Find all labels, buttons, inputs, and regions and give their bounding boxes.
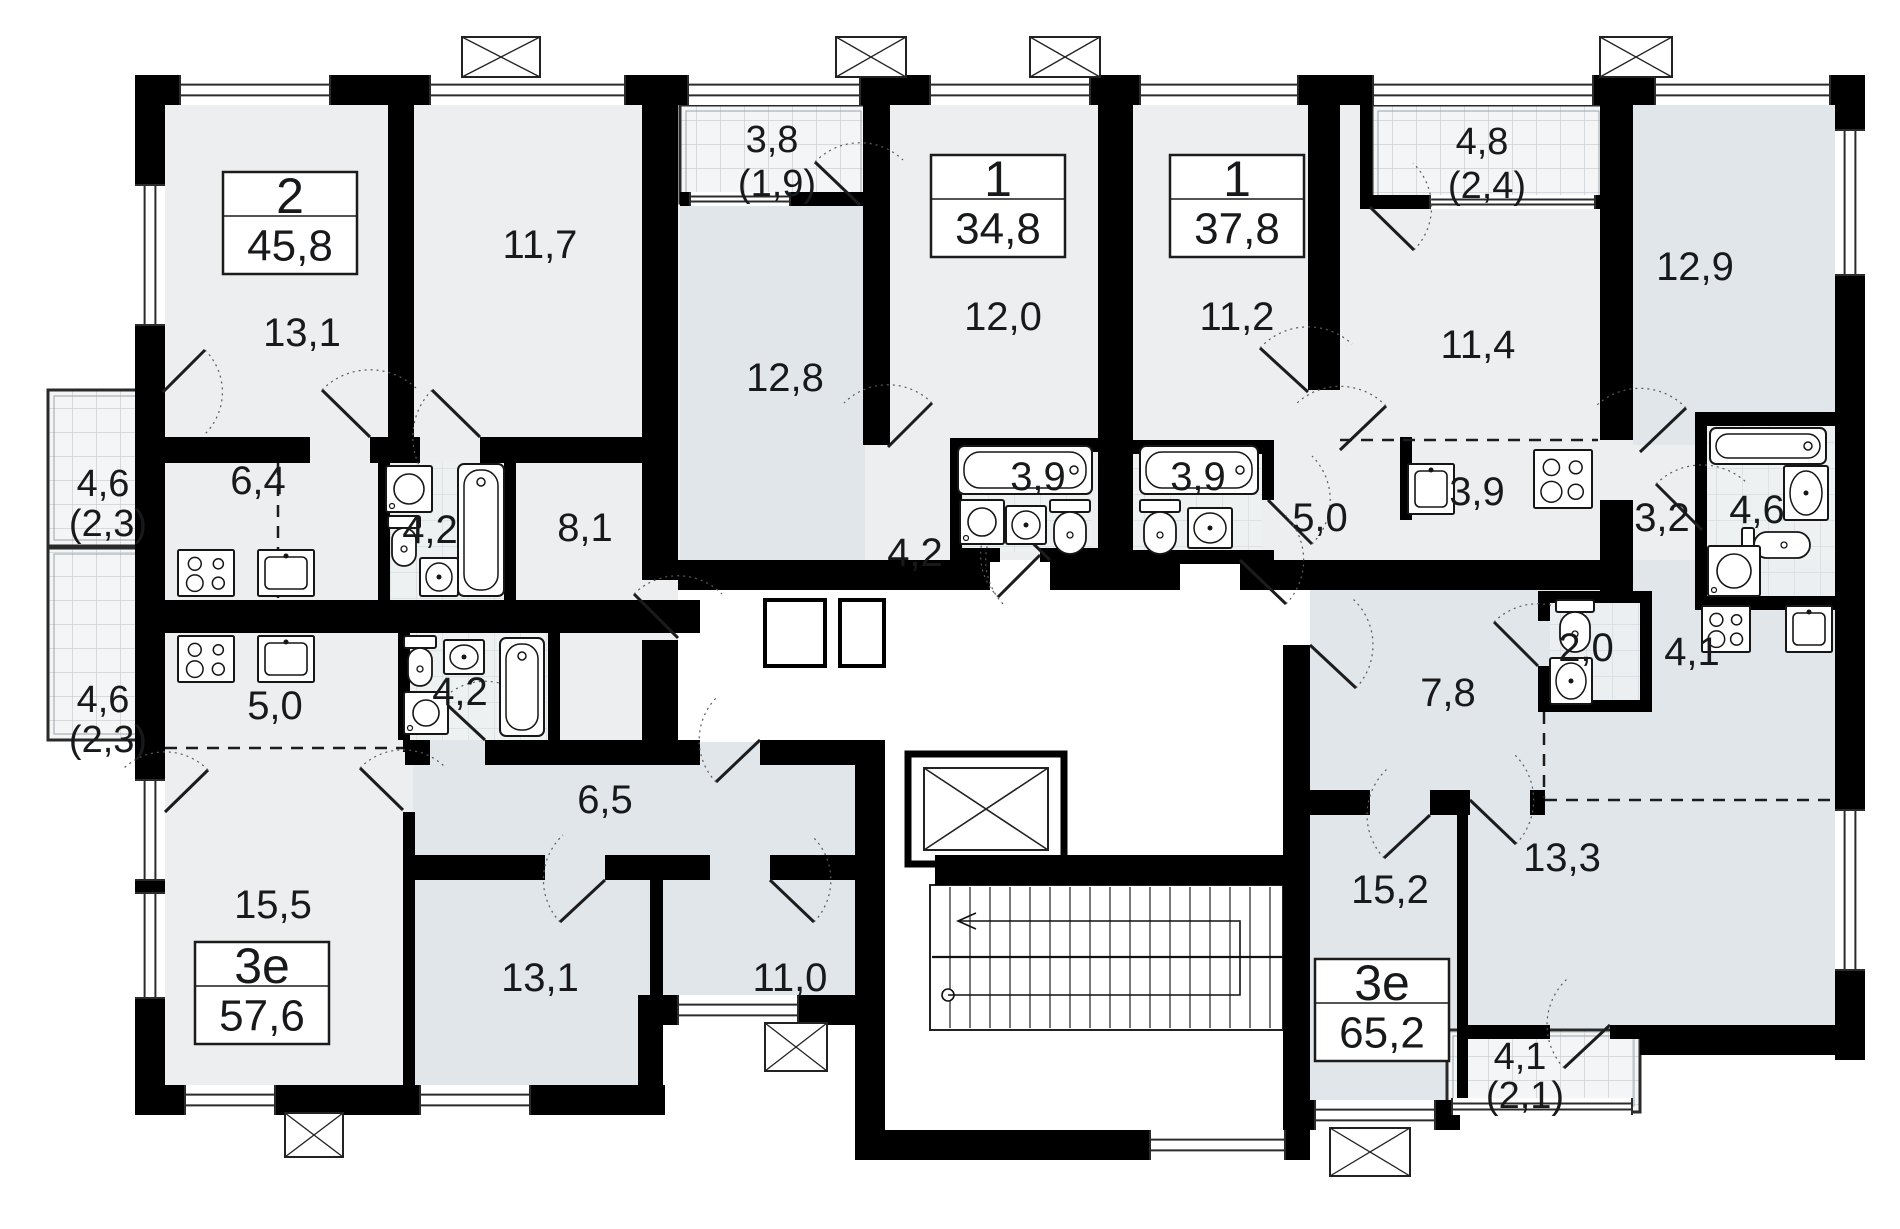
apt-3e-65-2-bathroom-area-label: 4,6 [1729, 488, 1785, 532]
apt-2rooms-45-8-hallway-area-label: 8,1 [557, 506, 613, 550]
apt-3e-65-2-hallway-area-label: 7,8 [1420, 671, 1476, 715]
apt-3e-65-2-bedroom-2-area-label: 13,3 [1523, 836, 1601, 880]
apartment-type-label: 1 [984, 151, 1012, 207]
apt-3e-65-2: 3е65,2 [1315, 955, 1449, 1061]
apartment-total-area-label: 45,8 [247, 222, 333, 271]
apt-3e-65-2-wc-area-label: 2,0 [1558, 626, 1614, 670]
apt-1room-34-8-bedroom-area-label: 12,0 [964, 295, 1042, 339]
apt-3e-57-6: 3е57,6 [195, 938, 329, 1044]
floor-plan-svg: 245,813,111,76,44,28,1134,812,812,03,94,… [0, 0, 1900, 1229]
apartment-total-area-label: 37,8 [1194, 205, 1280, 254]
apt-1room-34-8: 134,8 [931, 151, 1065, 257]
balcony-left-lower-reduced-area-label: (2,3) [69, 719, 147, 761]
apt-1room-37-8-bathroom-area-label: 3,9 [1170, 455, 1226, 499]
apt-3e-65-2-kitchen-area-label: 4,1 [1664, 630, 1720, 674]
apt-1room-37-8-kitchen-living-area-label: 11,4 [1441, 323, 1516, 367]
apt-2rooms-45-8-bedroom-area-label: 11,7 [503, 223, 578, 267]
balcony-bottom-right-area-label: 4,1 [1494, 1036, 1547, 1078]
floor-plan-canvas: 245,813,111,76,44,28,1134,812,812,03,94,… [0, 0, 1900, 1229]
apt-1room-34-8-bathroom-area-label: 3,9 [1010, 455, 1066, 499]
balcony-left-upper-area-label: 4,6 [77, 463, 130, 505]
apt-2rooms-45-8-kitchen-area-label: 6,4 [230, 459, 286, 503]
apartment-total-area-label: 65,2 [1339, 1009, 1425, 1058]
apt-1room-34-8-kitchen-living-area-label: 12,8 [746, 356, 824, 400]
apt-3e-57-6-bedroom-2-area-label: 11,0 [753, 956, 828, 1000]
apt-2rooms-45-8-bathroom-area-label: 4,2 [402, 508, 458, 552]
balcony-top-right-area-label: 4,8 [1456, 121, 1509, 163]
balcony-bottom-right-reduced-area-label: (2,1) [1486, 1075, 1564, 1117]
apartment-type-label: 2 [276, 168, 304, 224]
apartment-type-label: 1 [1223, 151, 1251, 207]
apt-3e-65-2-bedroom-area-label: 12,9 [1656, 245, 1734, 289]
apt-3e-57-6-corridor-area-label: 6,5 [577, 778, 633, 822]
balcony-left-lower-area-label: 4,6 [77, 679, 130, 721]
balcony-top-reduced-area-label: (1,9) [738, 163, 816, 205]
apt-1room-37-8: 137,8 [1170, 151, 1304, 257]
apartment-type-label: 3е [1354, 955, 1410, 1011]
apt-1room-34-8-hallway-area-label: 4,2 [887, 531, 943, 575]
apt-3e-65-2-living-room-area-label: 15,2 [1351, 868, 1429, 912]
apt-2rooms-45-8-living-room-area-label: 13,1 [263, 311, 341, 355]
apt-1room-37-8-kitchen-area-label: 3,9 [1449, 470, 1505, 514]
apt-3e-57-6-kitchen-area-label: 5,0 [247, 684, 303, 728]
balcony-top-right-reduced-area-label: (2,4) [1448, 165, 1526, 207]
balcony-top-area-label: 3,8 [746, 119, 799, 161]
apt-3e-57-6-bedroom-area-label: 13,1 [501, 956, 579, 1000]
apartment-total-area-label: 34,8 [955, 205, 1041, 254]
apt-3e-65-2-corridor-area-label: 3,2 [1634, 496, 1690, 540]
apt-2rooms-45-8: 245,8 [223, 168, 357, 274]
apt-1room-37-8-hallway-area-label: 5,0 [1292, 496, 1348, 540]
apt-3e-57-6-bathroom-area-label: 4,2 [432, 670, 488, 714]
apartment-type-label: 3е [234, 938, 290, 994]
apt-1room-37-8-bedroom-area-label: 11,2 [1200, 295, 1275, 339]
apt-3e-57-6-living-room-area-label: 15,5 [234, 883, 312, 927]
balcony-left-upper-reduced-area-label: (2,3) [69, 503, 147, 545]
apartment-total-area-label: 57,6 [219, 992, 305, 1041]
